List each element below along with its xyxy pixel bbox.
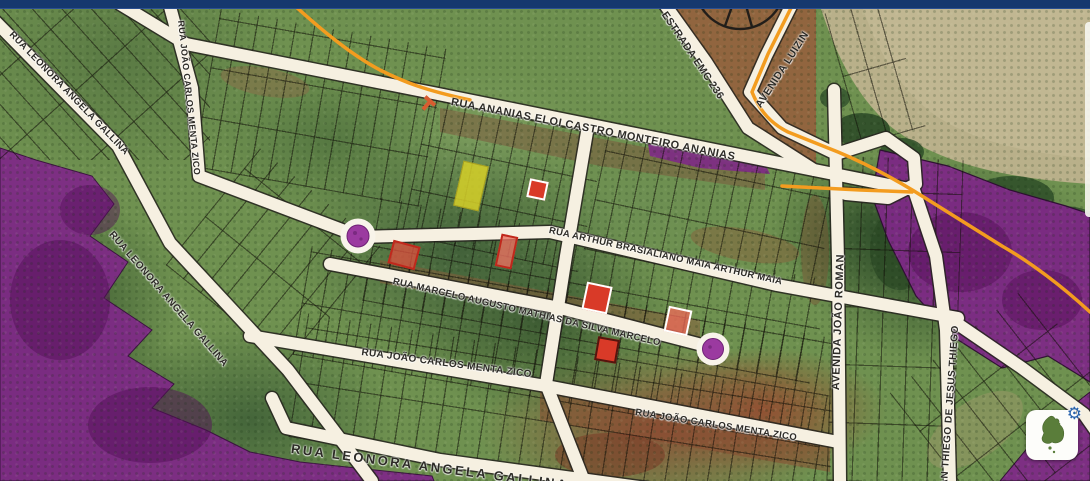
gear-icon[interactable]: ⚙: [1067, 404, 1082, 424]
top-bar: [0, 0, 1090, 9]
highlighted-parcel-red[interactable]: [594, 336, 620, 363]
map-canvas[interactable]: RUA LEONORA ANGELA GALLINA RUA JOÃO CARL…: [0, 0, 1090, 481]
side-panel-edge: [1085, 22, 1090, 217]
road-layer: [0, 0, 1090, 481]
highlighted-parcel-red[interactable]: [526, 178, 549, 201]
map-settings-button[interactable]: ⚙: [1026, 410, 1078, 460]
map-marker-east[interactable]: [697, 333, 730, 366]
map-marker-west[interactable]: [341, 219, 376, 254]
